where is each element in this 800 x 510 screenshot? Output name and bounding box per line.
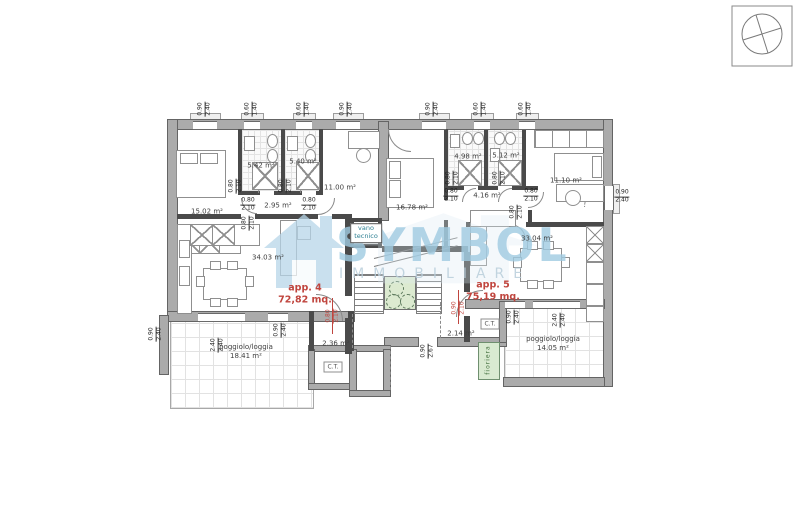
dining-table xyxy=(203,268,247,300)
dim-loggia-1: 2.402.40 xyxy=(211,337,226,352)
partition xyxy=(382,246,468,252)
loggia-floor-left xyxy=(170,321,314,409)
sofa xyxy=(280,220,297,276)
fioriera-label: fioriera xyxy=(485,345,492,374)
dim-top-2: 0.601.40 xyxy=(245,101,260,116)
boundary-dashed xyxy=(390,346,391,390)
pillow xyxy=(389,180,401,198)
boundary-dashed xyxy=(352,314,353,348)
room-label-15-02: 15.02 m² xyxy=(191,207,223,216)
dim-door-7: 0.802.10 xyxy=(446,170,461,185)
toilet xyxy=(305,134,316,148)
desk xyxy=(348,131,380,149)
chair xyxy=(210,261,221,270)
bidet xyxy=(505,132,516,145)
wardrobe xyxy=(534,130,604,148)
room-label-5-42: 5.42 m² xyxy=(247,161,274,170)
room-label-2-14: 2.14 m² xyxy=(447,329,474,338)
chair xyxy=(227,298,238,307)
partition xyxy=(255,214,318,219)
dim-top-3: 0.601.40 xyxy=(297,101,312,116)
dim-top-6: 0.601.40 xyxy=(474,101,489,116)
chair xyxy=(561,257,570,268)
apartment-5-label: app. 575,19 mq. xyxy=(466,280,520,305)
dim-loggia-3: 0.902.40 xyxy=(149,326,164,341)
pillow xyxy=(389,161,401,179)
sofa xyxy=(470,226,487,266)
sink xyxy=(287,136,298,151)
elevator-symbol xyxy=(400,294,415,309)
window xyxy=(519,121,535,130)
room-label-33-04: 33.04 m² xyxy=(521,234,553,243)
vano-tecnico-label: vanotecnico xyxy=(350,223,382,243)
chair xyxy=(227,261,238,270)
room-label-5-12: 5.12 m² xyxy=(492,151,519,160)
toilet xyxy=(267,134,278,148)
room-label-11-10: 11.10 m² xyxy=(550,176,582,185)
partition xyxy=(522,129,526,190)
window xyxy=(422,121,446,130)
window xyxy=(193,121,217,130)
ct-label-left: C.T. xyxy=(324,362,343,373)
room-label-4-16: 4.16 m² xyxy=(473,191,500,200)
floor-plan: SYMBOL IMMOBILIARE 15.02 m²5.42 m²5.40 m… xyxy=(0,0,800,510)
bidet xyxy=(473,132,484,145)
pillow xyxy=(592,156,602,178)
dim-entry-5: 0.902.10 xyxy=(452,300,467,315)
cabinet xyxy=(190,224,214,246)
partition xyxy=(528,210,532,224)
dim-top-7: 0.601.40 xyxy=(519,101,534,116)
window xyxy=(533,301,580,309)
room-label-2-95: 2.95 m² xyxy=(264,201,291,210)
chair xyxy=(210,298,221,307)
chair xyxy=(196,276,205,287)
room-label-16-78: 16.78 m² xyxy=(396,203,428,212)
window xyxy=(296,121,312,130)
wall xyxy=(160,316,168,374)
wall xyxy=(309,384,356,389)
north-indicator xyxy=(731,5,793,67)
loggia-label-left: poggiolo/loggia18.41 m² xyxy=(219,343,273,361)
cabinet xyxy=(586,306,604,322)
stair-treads xyxy=(416,274,442,314)
dim-door-6: 0.802.10 xyxy=(279,178,294,193)
window xyxy=(474,121,490,130)
dim-top-1: 0.902.40 xyxy=(198,101,213,116)
chair xyxy=(513,257,522,268)
shower xyxy=(458,160,482,186)
dim-right: 0.902.40 xyxy=(614,190,629,205)
side-table xyxy=(297,226,311,240)
stove xyxy=(586,284,604,306)
pillow xyxy=(180,153,198,164)
wall xyxy=(604,120,612,386)
stove xyxy=(179,266,190,286)
room-label-11-00: 11.00 m² xyxy=(324,183,356,192)
office-chair xyxy=(565,190,581,206)
room-label-4-98: 4.98 m² xyxy=(454,152,481,161)
wall xyxy=(168,120,612,129)
dim-top-4: 0.902.40 xyxy=(340,101,355,116)
dim-loggia-2: 0.902.40 xyxy=(274,322,289,337)
dim-door-2: 0.802.10 xyxy=(301,198,316,213)
window xyxy=(268,313,288,322)
elevator-symbol xyxy=(386,294,401,309)
dim-door-10: 0.802.10 xyxy=(242,215,257,230)
dim-loggia-5: 2.402.40 xyxy=(553,312,568,327)
dim-entry-4: 0.802.10 xyxy=(326,308,341,323)
kitchen-sink xyxy=(179,240,190,258)
dim-top-5: 0.902.40 xyxy=(426,101,441,116)
watermark: SYMBOL IMMOBILIARE xyxy=(0,0,800,510)
sink xyxy=(450,134,460,148)
partition xyxy=(316,191,323,195)
dim-door-1: 0.802.10 xyxy=(240,198,255,213)
apartment-4-label: app. 472,82 mq. xyxy=(278,283,332,308)
dining-table xyxy=(520,248,562,282)
wall xyxy=(350,391,390,396)
wall xyxy=(385,338,418,346)
cabinet xyxy=(586,244,604,262)
boundary-dashed xyxy=(440,302,441,338)
door-arc xyxy=(318,198,335,215)
wall xyxy=(350,350,356,396)
dim-door-5: 0.802.10 xyxy=(229,178,244,193)
wall xyxy=(309,350,314,388)
sink xyxy=(244,136,255,151)
partition xyxy=(350,244,382,248)
pillow xyxy=(200,153,218,164)
room-label-2-36: 2.36 m² xyxy=(322,339,349,348)
toilet xyxy=(494,132,505,145)
loggia-label-right: poggiolo/loggia14.05 m² xyxy=(526,335,580,353)
dim-door-8: 0.802.10 xyxy=(493,170,508,185)
chair xyxy=(527,280,538,289)
window xyxy=(336,121,360,130)
partition xyxy=(444,220,448,250)
window xyxy=(244,121,260,130)
dim-door-9: 0.802.10 xyxy=(510,204,525,219)
partition xyxy=(309,311,314,351)
chair xyxy=(245,276,254,287)
room-label-5-40: 5.40 m² xyxy=(289,157,316,166)
window xyxy=(198,313,245,322)
door-arc xyxy=(388,129,411,152)
partition xyxy=(478,186,498,190)
cabinet xyxy=(586,226,604,244)
stair-treads xyxy=(354,274,384,314)
chair xyxy=(543,280,554,289)
cabinet xyxy=(212,224,236,246)
dim-loggia-4: 0.902.40 xyxy=(507,309,522,324)
dim-door-3: 0.802.10 xyxy=(443,189,458,204)
ct-label-right: C.T. xyxy=(481,319,500,330)
kitchen-sink xyxy=(586,262,604,284)
dim-door-4: 0.802.10 xyxy=(523,189,538,204)
dim-bottom-center: 0.902.67 xyxy=(421,343,436,358)
window xyxy=(604,186,614,210)
partition xyxy=(484,129,488,190)
room-label-34-03: 34.03 m² xyxy=(252,253,284,262)
toilet xyxy=(462,132,473,145)
office-chair xyxy=(356,148,371,163)
wall xyxy=(504,378,604,386)
